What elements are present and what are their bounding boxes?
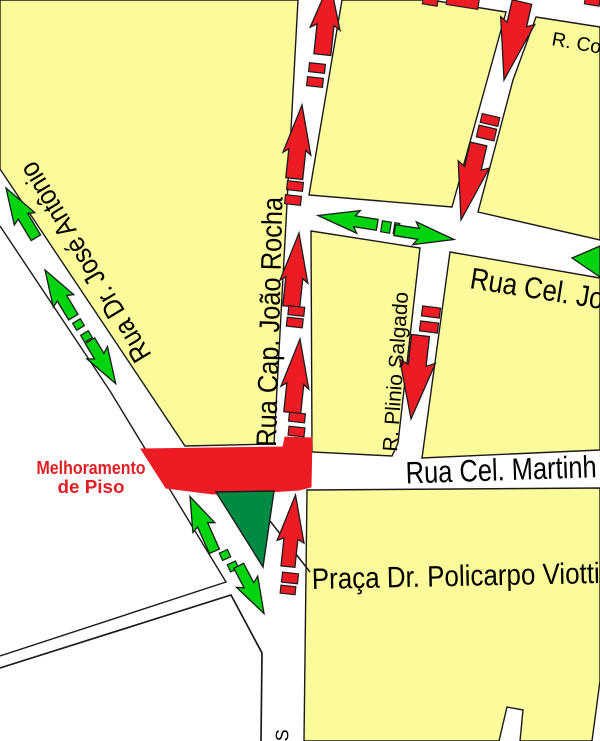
svg-text:de Piso: de Piso <box>58 477 125 497</box>
svg-text:Melhoramento: Melhoramento <box>37 458 146 478</box>
svg-text:Rua Cel. Martinh: Rua Cel. Martinh <box>405 449 597 490</box>
svg-text:Praça Dr. Policarpo Viotti: Praça Dr. Policarpo Viotti <box>311 557 600 596</box>
svg-text:S: S <box>272 729 292 741</box>
svg-text:Rua Cap. João Rocha: Rua Cap. João Rocha <box>251 196 290 447</box>
